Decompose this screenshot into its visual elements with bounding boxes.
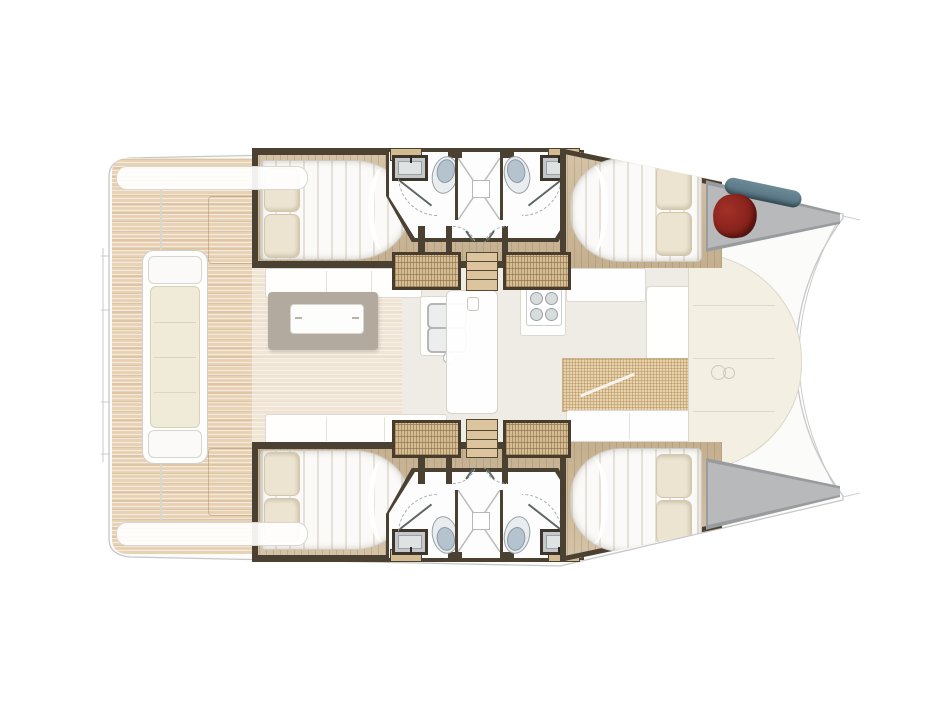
roof-edge-top [116,166,308,190]
companionway-port-fwd [503,252,571,290]
burner-icon [530,292,543,305]
companionway-stbd-fwd [503,420,571,458]
center-step [466,448,498,458]
stove-unit [526,288,562,326]
hull-port [252,148,840,268]
shower-drain [472,512,490,530]
cabin-wall [560,442,566,562]
roof-post [160,458,162,522]
shower [455,490,503,552]
blanket-fold [578,166,608,252]
foredeck-door-panel [446,290,498,414]
bench-armrest [148,256,202,284]
winch-emblem-icon [723,367,735,379]
boat-plan [0,0,947,710]
roof-post [160,188,162,252]
pillow [264,214,300,258]
bench-armrest [148,430,202,458]
roof-edge-bottom [116,522,308,546]
pillow [656,212,692,256]
foredeck-cabinet [646,286,692,364]
bench-cushion [150,286,200,428]
cabin-wall [560,148,566,268]
center-step [466,279,498,291]
cabin-forward [560,148,722,268]
door-handle-icon [467,297,479,311]
burner-icon [530,308,543,321]
foredeck-seat [566,410,692,442]
mesh-cushion [562,358,692,412]
foredeck-seat [566,268,646,302]
pillow [656,454,692,498]
pillow [656,500,692,544]
burner-icon [545,292,558,305]
companionway-port-aft [392,252,461,290]
pillow [264,452,300,496]
shower [455,158,503,220]
burner-icon [545,308,558,321]
hull-starboard [252,442,840,562]
blanket-fold [578,458,608,544]
pillow [656,166,692,210]
shower-wall [448,552,462,562]
companionway-stbd-aft [392,420,461,458]
cabin-forward [560,442,722,562]
table-tray [290,304,364,334]
shower-drain [472,180,490,198]
